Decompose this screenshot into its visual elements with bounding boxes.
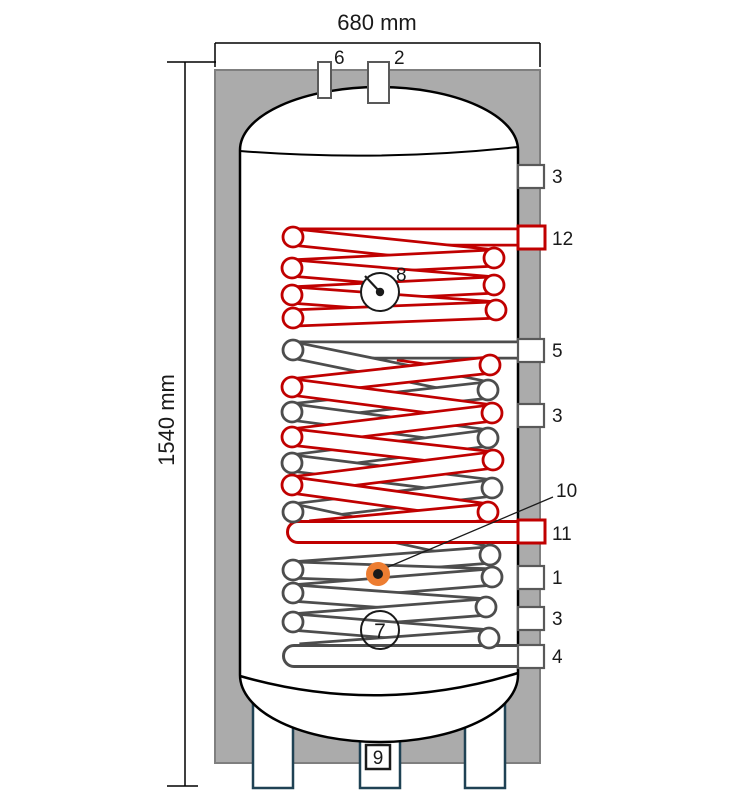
storage-tank-diagram: 680 mm 1540 mm 7 10 8 3 12: [0, 0, 736, 794]
coil-pipe-core: [293, 310, 496, 318]
coil-turn: [484, 248, 504, 268]
coil-turn: [282, 475, 302, 495]
coil-red-outlet-pipe: [288, 522, 534, 543]
port-11: [518, 520, 545, 543]
thermometer-needle-hub: [376, 288, 384, 296]
port-3-lower-label: 3: [552, 609, 563, 630]
coil-turn: [478, 380, 498, 400]
port-1: [518, 566, 544, 589]
tank-diagram-canvas: 680 mm 1540 mm 7 10 8 3 12: [0, 0, 736, 794]
port-5: [518, 339, 544, 362]
coil-black-outlet-pipe: [284, 646, 534, 667]
coil-turn: [478, 428, 498, 448]
port-2: [368, 62, 389, 103]
coil-turn: [282, 427, 302, 447]
coil-turn: [283, 612, 303, 632]
coil-turn: [476, 597, 496, 617]
port-12: [518, 226, 545, 249]
port-2-label: 2: [394, 48, 405, 69]
port-6-label: 6: [334, 48, 345, 69]
sensor-label: 10: [556, 481, 577, 502]
port-1-label: 1: [552, 568, 563, 589]
coil-turn: [283, 340, 303, 360]
port-4-label: 4: [552, 647, 563, 668]
coil-turn: [282, 258, 302, 278]
port-5-label: 5: [552, 341, 563, 362]
coil-turn: [486, 300, 506, 320]
coil-turn: [482, 478, 502, 498]
coil-turn: [282, 285, 302, 305]
coil-turn: [482, 567, 502, 587]
thermometer-upper-label: 8: [396, 265, 407, 286]
coil-turn: [480, 355, 500, 375]
coil-turn: [482, 403, 502, 423]
port-3-middle-label: 3: [552, 406, 563, 427]
port-12-label: 12: [552, 229, 573, 250]
port-6: [318, 62, 331, 98]
coil-turn: [283, 502, 303, 522]
thermometer-lower-label: 7: [374, 620, 386, 643]
bottom-port: 9: [366, 745, 390, 769]
height-dimension-label: 1540 mm: [154, 374, 179, 466]
coil-turn: [478, 502, 498, 522]
temperature-sensor: [366, 562, 390, 586]
coil-turn: [282, 402, 302, 422]
coil-turn: [282, 377, 302, 397]
port-3-upper-label: 3: [552, 167, 563, 188]
coil-turn: [283, 583, 303, 603]
port-4: [518, 645, 544, 668]
width-dimension-label: 680 mm: [337, 10, 416, 35]
coil-turn: [283, 560, 303, 580]
coil-turn: [283, 227, 303, 247]
port-3-lower: [518, 607, 544, 630]
coil-turn: [283, 308, 303, 328]
coil-turn: [484, 275, 504, 295]
port-11-label: 11: [552, 524, 572, 545]
coil-turn: [479, 628, 499, 648]
coil-turn: [282, 453, 302, 473]
port-9-label: 9: [373, 748, 384, 769]
port-3-upper: [518, 165, 544, 188]
sensor-dot-center: [373, 569, 383, 579]
coil-turn: [480, 545, 500, 565]
coil-turn: [483, 450, 503, 470]
port-3-middle: [518, 404, 544, 427]
